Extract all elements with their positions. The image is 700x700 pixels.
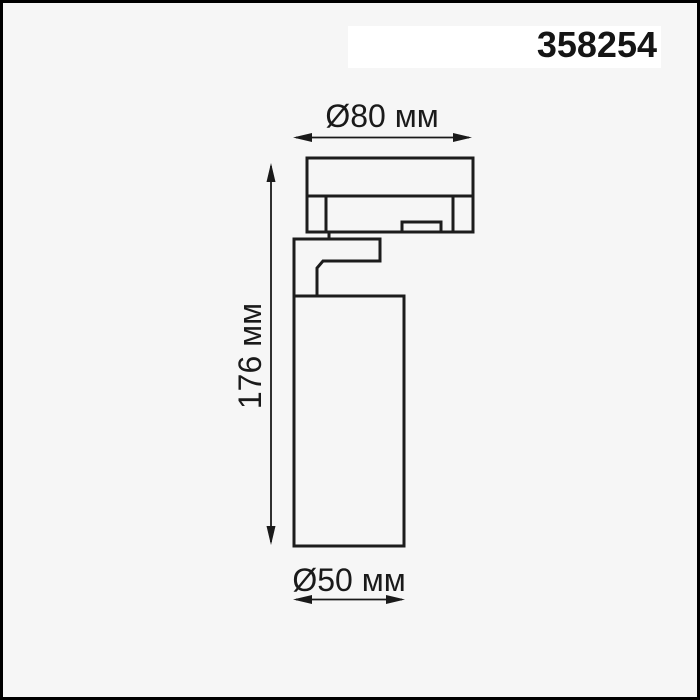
dimension-drawing: 358254 Ø80 мм 176 мм <box>3 3 697 697</box>
part-number-label: 358254 <box>348 24 661 68</box>
diagram-frame: 358254 Ø80 мм 176 мм <box>0 0 700 700</box>
arrow-left-icon <box>293 133 312 142</box>
dimension-side-height-text: 176 мм <box>232 303 268 409</box>
cylinder-body-outline <box>294 296 404 546</box>
dimension-top-width: Ø80 мм <box>293 98 472 142</box>
arrow-up-icon <box>267 163 276 182</box>
fixture-track-adapter <box>307 158 473 239</box>
fixture-cylinder-body <box>294 296 404 546</box>
fixture-bracket-arm <box>294 239 380 296</box>
dimension-bottom-diameter-text: Ø50 мм <box>292 562 405 598</box>
adapter-clip-outline <box>402 222 441 232</box>
dimension-bottom-diameter: Ø50 мм <box>292 562 405 604</box>
arrow-down-icon <box>267 526 276 545</box>
dimension-side-height: 176 мм <box>232 163 276 545</box>
arrow-right-icon <box>453 133 472 142</box>
part-number-text: 358254 <box>537 24 657 65</box>
bracket-arm-outline <box>294 239 380 296</box>
dimension-top-width-text: Ø80 мм <box>325 98 438 134</box>
